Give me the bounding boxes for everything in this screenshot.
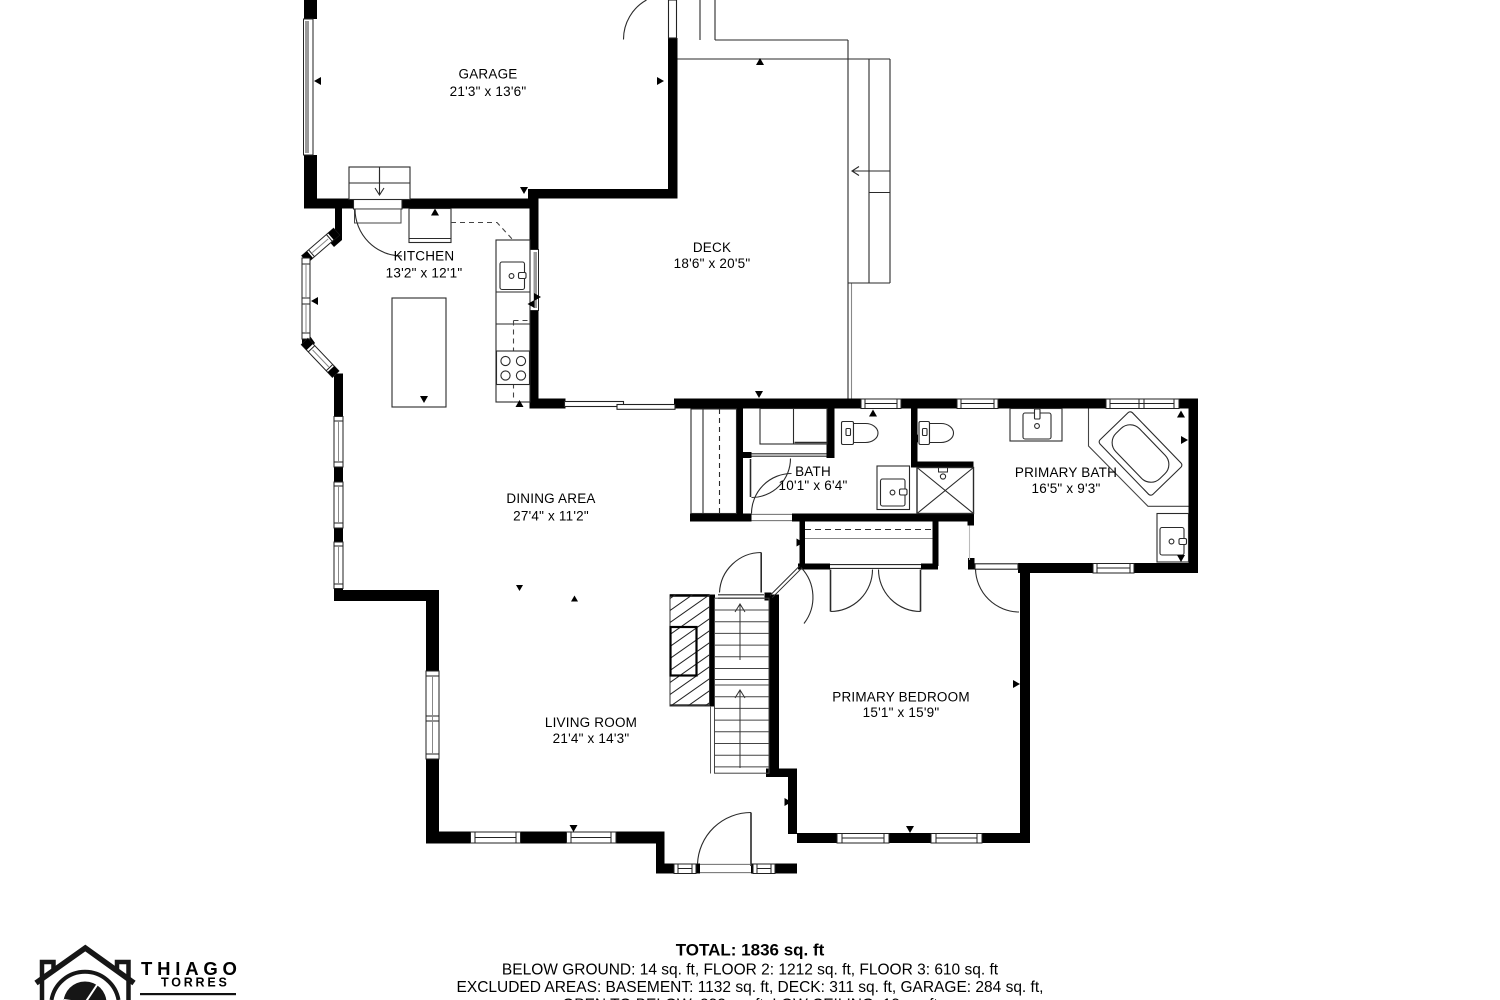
svg-text:15'1" x 15'9": 15'1" x 15'9" [863, 705, 940, 720]
svg-text:PRIMARY BATH: PRIMARY BATH [1015, 465, 1117, 480]
svg-text:OPEN TO BELOW: 232 sq. ft, LOW: OPEN TO BELOW: 232 sq. ft, LOW CEILING: … [562, 997, 938, 1000]
svg-text:21'3" x 13'6": 21'3" x 13'6" [450, 84, 527, 99]
svg-text:PRIMARY BEDROOM: PRIMARY BEDROOM [832, 690, 970, 705]
svg-text:LIVING ROOM: LIVING ROOM [545, 715, 637, 730]
svg-text:GARAGE: GARAGE [459, 67, 518, 82]
svg-text:DINING AREA: DINING AREA [506, 491, 595, 506]
svg-text:13'2" x 12'1": 13'2" x 12'1" [386, 266, 463, 281]
svg-text:EXCLUDED AREAS: BASEMENT: 1132: EXCLUDED AREAS: BASEMENT: 1132 sq. ft, D… [457, 979, 1044, 996]
svg-text:10'1" x 6'4": 10'1" x 6'4" [779, 478, 848, 493]
svg-text:TORRES: TORRES [161, 976, 230, 990]
svg-text:TOTAL: 1836 sq. ft: TOTAL: 1836 sq. ft [676, 941, 825, 960]
svg-text:27'4" x 11'2": 27'4" x 11'2" [513, 509, 589, 524]
svg-text:16'5" x 9'3": 16'5" x 9'3" [1032, 481, 1101, 496]
svg-text:21'4" x 14'3": 21'4" x 14'3" [553, 731, 630, 746]
svg-text:KITCHEN: KITCHEN [394, 249, 455, 264]
svg-text:BATH: BATH [795, 464, 831, 479]
svg-text:DECK: DECK [693, 240, 731, 255]
svg-text:18'6" x 20'5": 18'6" x 20'5" [674, 256, 751, 271]
svg-text:BELOW GROUND: 14 sq. ft, FLOOR: BELOW GROUND: 14 sq. ft, FLOOR 2: 1212 s… [502, 962, 999, 979]
